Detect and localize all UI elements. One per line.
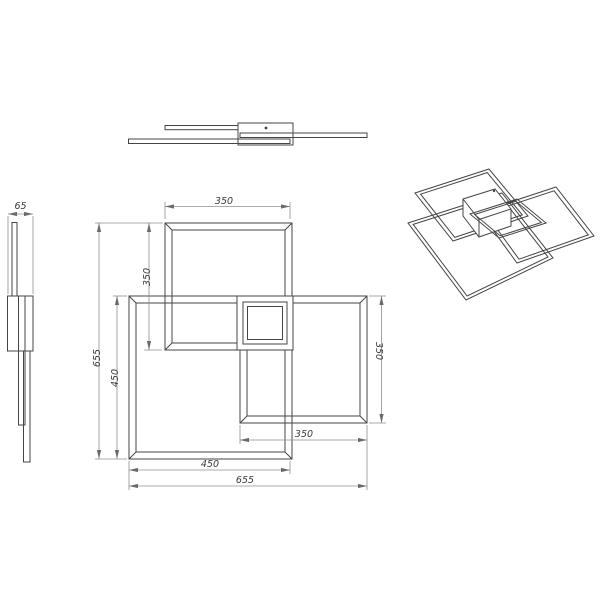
front-canopy-box [238,123,293,145]
dim-label-bottom-outer: 655 [236,475,254,486]
dim-label-height: 65 [14,201,26,212]
plan-canopy-box [237,296,293,350]
dim-label-bottom-inner: 350 [295,429,313,440]
front-view [129,123,368,145]
front-top-frame-bar [165,126,238,130]
side-right-frame-bar [19,296,26,425]
technical-drawing-canvas: 65 [0,0,600,600]
side-canopy-box [8,296,34,351]
front-big-frame-bar [129,139,291,144]
dim-label-left-inner: 350 [142,268,153,286]
side-top-frame-bar [12,223,17,297]
dim-label-left-mid: 450 [110,369,121,387]
drawing-svg: 65 [0,0,600,600]
front-right-frame-bar [240,133,367,138]
persp-canopy-box [463,189,511,237]
persp-mount-dot [493,190,495,192]
side-big-frame-bar [24,351,31,462]
dim-label-right-height: 350 [373,342,384,360]
side-view: 65 [8,201,34,462]
dim-label-top-width: 350 [215,196,233,207]
dim-label-bottom-mid: 450 [201,459,219,470]
dim-label-left-outer: 655 [92,349,103,367]
plan-view: 350 350 450 655 350 [92,196,386,490]
front-mount-dot [265,127,268,130]
perspective-view [408,169,594,300]
